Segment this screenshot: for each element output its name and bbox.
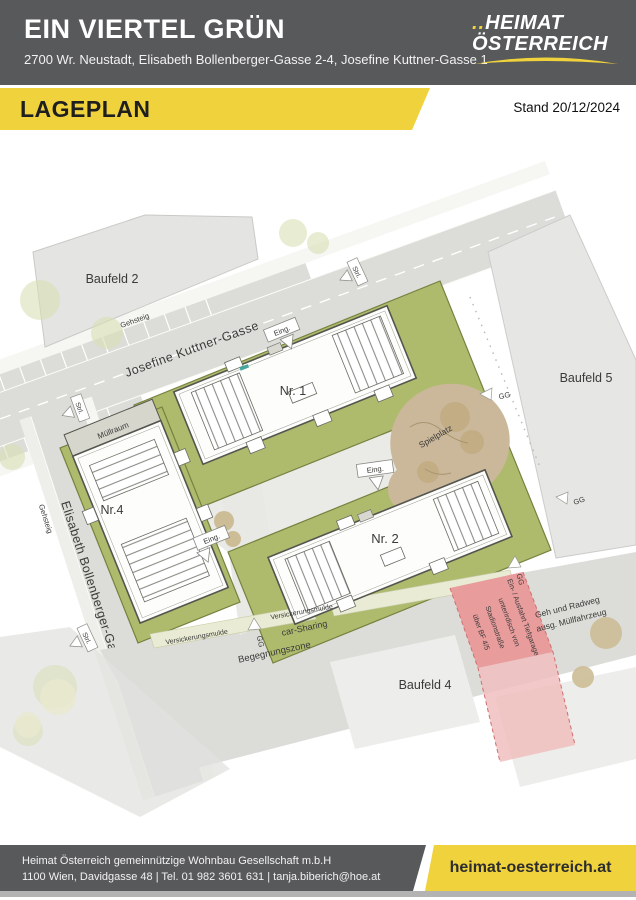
logo-line2: ÖSTERREICH: [472, 34, 624, 55]
project-title: EIN VIERTEL GRÜN: [24, 14, 285, 45]
nr2-label: Nr. 2: [371, 531, 398, 546]
footer-bar: Heimat Österreich gemeinnützige Wohnbau …: [0, 845, 636, 891]
header-bar: EIN VIERTEL GRÜN 2700 Wr. Neustadt, Elis…: [0, 0, 636, 85]
nr4-label: Nr.4: [101, 503, 124, 517]
nr1-label: Nr. 1: [280, 384, 306, 398]
baufeld2-label: Baufeld 2: [86, 272, 139, 286]
footer-website-block: heimat-oesterreich.at: [425, 845, 636, 891]
heimat-oesterreich-logo: ..HEIMAT ÖSTERREICH: [472, 13, 624, 65]
section-banner: LAGEPLAN Stand 20/12/2024: [0, 88, 636, 130]
page-title: LAGEPLAN: [20, 96, 151, 123]
baufeld4-label: Baufeld 4: [399, 678, 452, 692]
plan-date: Stand 20/12/2024: [513, 100, 620, 115]
page-bottom-strip: [0, 891, 636, 897]
site-plan: Josefine Kuttner-Gasse Gehsteig Gehsteig…: [0, 137, 636, 842]
baufeld5-label: Baufeld 5: [560, 371, 613, 385]
logo-swoosh-icon: [472, 56, 620, 65]
footer-contact: Heimat Österreich gemeinnützige Wohnbau …: [0, 845, 426, 891]
footer-address: 1100 Wien, Davidgasse 48 | Tel. 01 982 3…: [22, 869, 426, 885]
footer-website: heimat-oesterreich.at: [450, 859, 612, 877]
footer-company: Heimat Österreich gemeinnützige Wohnbau …: [22, 853, 426, 869]
site-plan-svg: Josefine Kuttner-Gasse Gehsteig Gehsteig…: [0, 137, 636, 842]
gg-label-1: GG: [498, 390, 511, 401]
logo-dots: ..: [472, 12, 485, 34]
logo-line1: HEIMAT: [485, 12, 563, 34]
project-address: 2700 Wr. Neustadt, Elisabeth Bollenberge…: [24, 52, 488, 67]
